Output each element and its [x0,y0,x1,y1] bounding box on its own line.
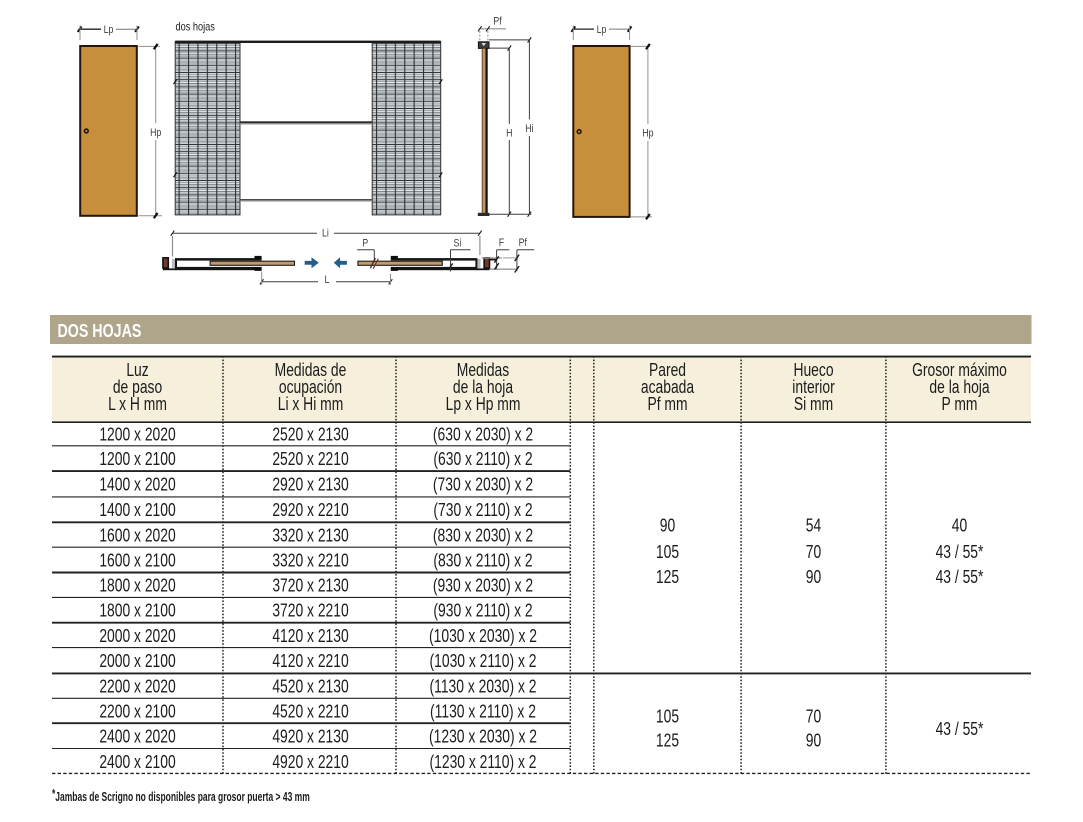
svg-text:3320 x 2130: 3320 x 2130 [272,526,348,546]
svg-text:Si mm: Si mm [794,394,833,414]
svg-text:40: 40 [952,516,967,536]
svg-text:3720 x 2210: 3720 x 2210 [272,601,348,621]
svg-text:125: 125 [656,567,679,587]
svg-text:4920 x 2130: 4920 x 2130 [272,727,348,747]
svg-text:DOS HOJAS: DOS HOJAS [58,321,142,341]
svg-text:L x H mm: L x H mm [108,394,167,414]
svg-text:4520 x 2130: 4520 x 2130 [272,677,348,697]
svg-text:2400 x 2020: 2400 x 2020 [99,727,175,747]
svg-text:1200 x 2100: 1200 x 2100 [99,449,175,469]
svg-text:1400 x 2020: 1400 x 2020 [99,475,175,495]
svg-text:2000 x 2100: 2000 x 2100 [99,651,175,671]
svg-text:70: 70 [806,542,821,562]
svg-text:4520 x 2210: 4520 x 2210 [272,702,348,722]
svg-text:4120 x 2210: 4120 x 2210 [272,651,348,671]
svg-text:Hp: Hp [150,127,162,139]
svg-text:(730 x 2110) x 2: (730 x 2110) x 2 [433,500,532,520]
svg-text:dos hojas: dos hojas [176,20,215,33]
svg-text:1600 x 2020: 1600 x 2020 [99,526,175,546]
svg-text:(730 x 2030) x 2: (730 x 2030) x 2 [433,475,533,495]
svg-text:2920 x 2210: 2920 x 2210 [272,500,348,520]
svg-text:43 / 55*: 43 / 55* [936,719,984,739]
svg-text:2200 x 2020: 2200 x 2020 [99,677,175,697]
svg-text:90: 90 [806,567,821,587]
svg-text:105: 105 [656,706,679,726]
svg-text:43 / 55*: 43 / 55* [936,542,984,562]
svg-text:1200 x 2020: 1200 x 2020 [99,425,175,445]
svg-text:70: 70 [806,706,821,726]
svg-text:H: H [506,128,512,140]
svg-text:Pf: Pf [493,15,502,27]
svg-text:Li x Hi mm: Li x Hi mm [278,394,343,414]
svg-text:1800 x 2020: 1800 x 2020 [99,576,175,596]
svg-text:(1130 x 2110) x 2: (1130 x 2110) x 2 [430,702,536,722]
svg-text:Si: Si [453,238,461,250]
svg-text:(830 x 2110) x 2: (830 x 2110) x 2 [433,551,532,571]
svg-text:*Jambas de Scrigno no disponib: *Jambas de Scrigno no disponibles para g… [52,787,310,804]
svg-text:54: 54 [806,516,821,536]
svg-text:125: 125 [656,731,679,751]
svg-text:Li: Li [322,228,329,240]
svg-text:(1030 x 2110) x 2: (1030 x 2110) x 2 [430,651,537,671]
svg-text:Hp: Hp [642,128,654,140]
svg-text:(930 x 2110) x 2: (930 x 2110) x 2 [433,601,532,621]
svg-text:(1030 x 2030) x 2: (1030 x 2030) x 2 [429,626,537,646]
svg-text:Lp: Lp [597,24,607,36]
svg-text:P: P [362,237,368,249]
svg-text:90: 90 [660,516,675,536]
svg-text:2520 x 2210: 2520 x 2210 [272,449,348,469]
svg-text:90: 90 [806,731,821,751]
svg-text:2920 x 2130: 2920 x 2130 [272,475,348,495]
svg-text:2000 x 2020: 2000 x 2020 [99,626,175,646]
svg-text:L: L [325,274,330,286]
svg-text:Lp: Lp [104,24,114,36]
svg-text:F: F [499,237,504,249]
svg-text:Lp x Hp mm: Lp x Hp mm [446,394,521,414]
svg-text:1400 x 2100: 1400 x 2100 [99,500,175,520]
svg-text:2200 x 2100: 2200 x 2100 [99,702,175,722]
svg-text:1600 x 2100: 1600 x 2100 [99,551,175,571]
svg-text:4120 x 2130: 4120 x 2130 [272,626,348,646]
svg-text:2520 x 2130: 2520 x 2130 [272,425,348,445]
svg-text:43 / 55*: 43 / 55* [936,567,984,587]
svg-text:1800 x 2100: 1800 x 2100 [99,601,175,621]
svg-text:3720 x 2130: 3720 x 2130 [272,576,348,596]
svg-text:(630 x 2110) x 2: (630 x 2110) x 2 [433,449,532,469]
svg-text:(830 x 2030) x 2: (830 x 2030) x 2 [433,526,533,546]
svg-text:(930 x 2030) x 2: (930 x 2030) x 2 [433,576,533,596]
svg-text:Pf: Pf [519,237,528,249]
svg-text:Hi: Hi [525,123,533,135]
svg-text:(1230 x 2030) x 2: (1230 x 2030) x 2 [429,727,537,747]
svg-text:4920 x 2210: 4920 x 2210 [272,752,348,772]
svg-text:105: 105 [656,542,679,562]
svg-text:2400 x 2100: 2400 x 2100 [99,752,175,772]
svg-text:P mm: P mm [942,394,978,414]
svg-text:(630 x 2030) x 2: (630 x 2030) x 2 [433,425,533,445]
svg-text:(1230 x 2110) x 2: (1230 x 2110) x 2 [430,752,537,772]
svg-text:3320 x 2210: 3320 x 2210 [272,551,348,571]
svg-text:Pf mm: Pf mm [647,394,687,414]
svg-text:(1130 x 2030) x 2: (1130 x 2030) x 2 [430,677,537,697]
